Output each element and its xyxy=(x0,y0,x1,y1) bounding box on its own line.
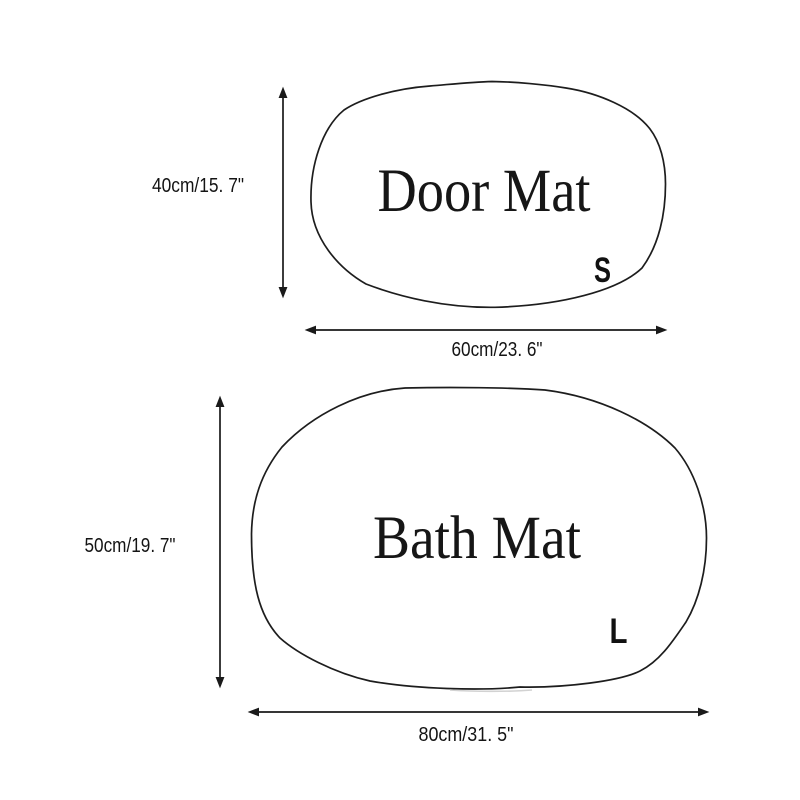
svg-text:80cm/31. 5": 80cm/31. 5" xyxy=(419,724,514,746)
svg-text:40cm/15. 7": 40cm/15. 7" xyxy=(152,175,244,197)
svg-text:50cm/19. 7": 50cm/19. 7" xyxy=(85,535,176,557)
svg-text:60cm/23. 6": 60cm/23. 6" xyxy=(452,339,543,361)
svg-text:S: S xyxy=(594,251,611,290)
svg-text:Bath Mat: Bath Mat xyxy=(373,505,581,572)
svg-text:L: L xyxy=(610,612,628,651)
svg-text:Door Mat: Door Mat xyxy=(378,158,591,225)
